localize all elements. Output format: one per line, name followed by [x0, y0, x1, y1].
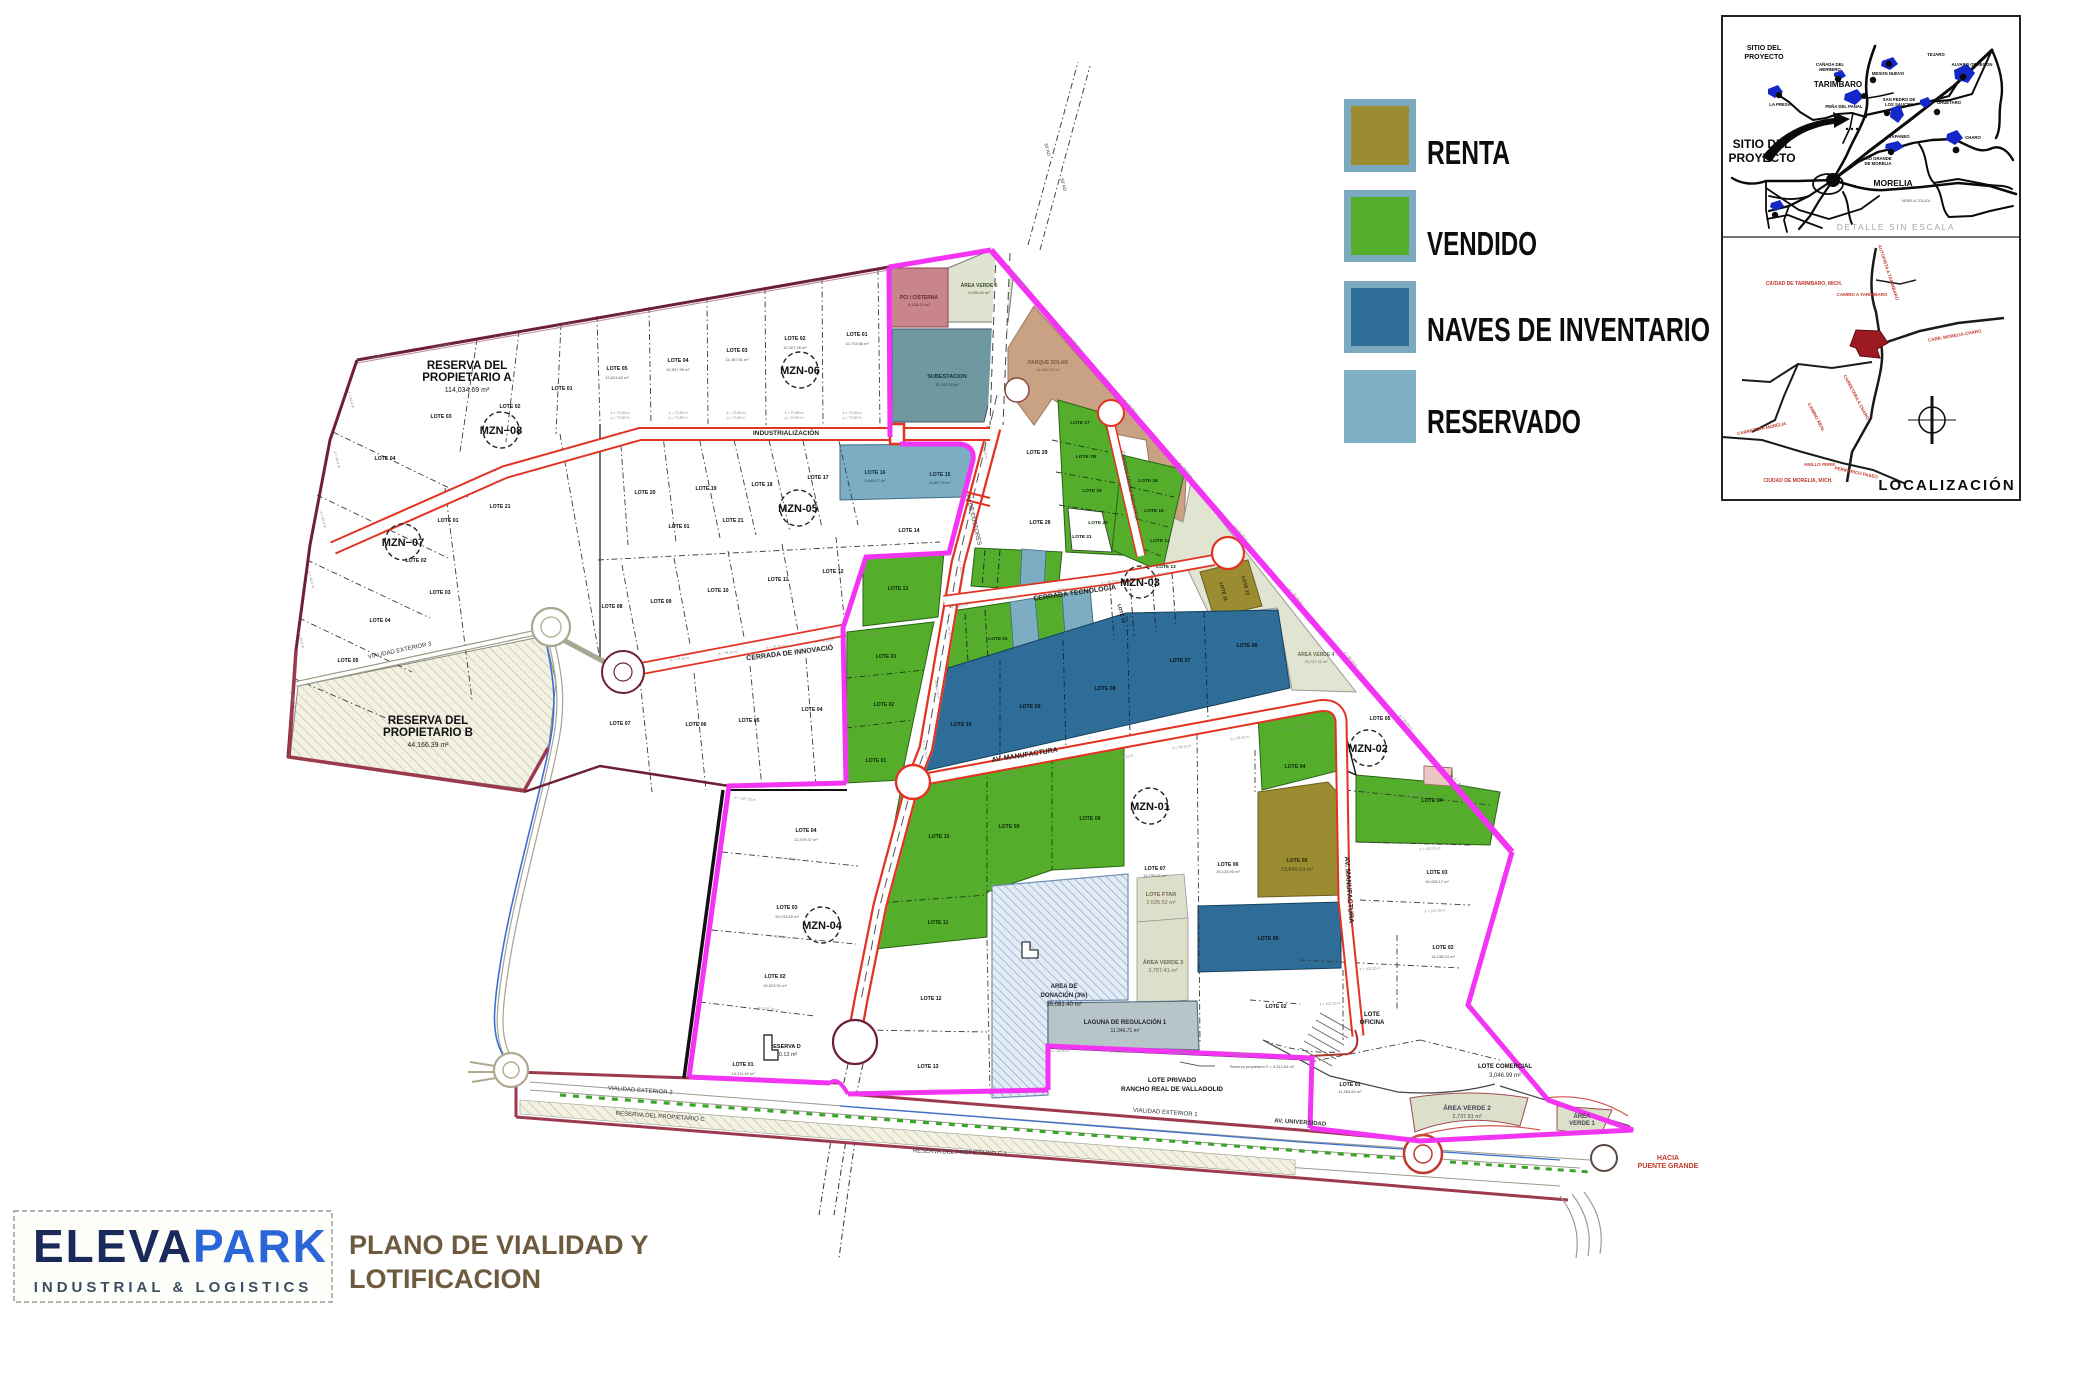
svg-text:LOTE 02: LOTE 02: [499, 404, 520, 410]
svg-text:LOTE 09: LOTE 09: [998, 824, 1019, 830]
svg-text:LOTE 06: LOTE 06: [1217, 862, 1238, 868]
svg-text:LOTE 08: LOTE 08: [1094, 686, 1115, 692]
svg-text:AV. UNIVERSIDAD: AV. UNIVERSIDAD: [1274, 1118, 1327, 1128]
svg-text:RESERVA DEL: RESERVA DEL: [427, 360, 507, 372]
svg-text:LOTE 15: LOTE 15: [1144, 508, 1164, 514]
svg-text:INDUSTRIALIZACIÓN: INDUSTRIALIZACIÓN: [753, 428, 819, 437]
svg-text:LOTE 10: LOTE 10: [928, 834, 949, 840]
svg-text:4 = 187.20 m: 4 = 187.20 m: [734, 796, 755, 802]
svg-text:LOTE 13: LOTE 13: [888, 586, 909, 592]
svg-text:MESON NUEVO: MESON NUEVO: [1872, 71, 1905, 76]
svg-text:d = 75.20 m: d = 75.20 m: [370, 353, 389, 360]
svg-text:MZN-06: MZN-06: [780, 365, 820, 377]
svg-text:LOTE 05: LOTE 05: [1257, 936, 1278, 942]
svg-text:d = 60.4 m: d = 60.4 m: [289, 691, 297, 709]
svg-text:LOTE 06: LOTE 06: [1236, 643, 1257, 649]
svg-text:LOTE: LOTE: [1364, 1012, 1380, 1018]
svg-text:11,457.81 m²: 11,457.81 m²: [725, 357, 749, 362]
svg-text:ANILLO PERIF.: ANILLO PERIF.: [1804, 462, 1836, 467]
svg-text:ÁREA VERDE 4: ÁREA VERDE 4: [1298, 651, 1335, 658]
svg-text:LOTE 16: LOTE 16: [1138, 478, 1158, 484]
svg-text:12,407.26 m²: 12,407.26 m²: [783, 345, 807, 350]
svg-text:d = 75.20 m: d = 75.20 m: [680, 300, 699, 307]
svg-text:LOTE 01: LOTE 01: [866, 758, 887, 764]
svg-text:MZN−08: MZN−08: [480, 425, 523, 437]
svg-text:LOTE 04: LOTE 04: [1284, 764, 1305, 770]
svg-text:d = 60.4 m: d = 60.4 m: [307, 571, 315, 589]
svg-text:d = 75.20 m: d = 75.20 m: [742, 289, 761, 296]
svg-text:ELEVAPARK: ELEVAPARK: [33, 1220, 328, 1272]
svg-text:6,126.20 m²: 6,126.20 m²: [908, 302, 930, 307]
svg-text:PLANO DE VIALIDAD Y: PLANO DE VIALIDAD Y: [349, 1230, 649, 1260]
svg-text:44,166.39 m²: 44,166.39 m²: [407, 742, 449, 749]
svg-text:4 = 73.85 m: 4 = 73.85 m: [668, 411, 687, 415]
svg-text:4 = 187.20 m: 4 = 187.20 m: [779, 856, 800, 862]
svg-text:VENDIDO: VENDIDO: [1427, 225, 1537, 262]
svg-text:d = 75.20 m: d = 75.20 m: [494, 332, 513, 339]
svg-text:HACIA: HACIA: [1657, 1155, 1679, 1162]
svg-text:LOTE 07: LOTE 07: [1169, 658, 1190, 664]
svg-text:d = 73.85 m: d = 73.85 m: [726, 416, 745, 421]
svg-text:LOTE 01: LOTE 01: [437, 518, 458, 524]
svg-text:VERDE 1: VERDE 1: [1569, 1121, 1595, 1127]
svg-text:SITIO DEL: SITIO DEL: [1747, 45, 1782, 52]
svg-text:LOTE 01: LOTE 01: [988, 636, 1008, 642]
svg-text:4 = 73.85 m: 4 = 73.85 m: [726, 411, 745, 415]
svg-text:LOTE 05: LOTE 05: [337, 658, 358, 664]
svg-text:RENTA: RENTA: [1427, 134, 1510, 171]
svg-text:LOTE 14: LOTE 14: [898, 528, 919, 534]
svg-text:LOTE 01: LOTE 01: [551, 386, 572, 392]
svg-text:MZN-01: MZN-01: [1130, 801, 1170, 813]
svg-text:LOTE 29: LOTE 29: [1026, 450, 1047, 456]
svg-text:LOTE 06: LOTE 06: [685, 722, 706, 728]
svg-text:LOTE 14: LOTE 14: [1150, 538, 1170, 544]
svg-text:LOTIFICACION: LOTIFICACION: [349, 1264, 541, 1294]
svg-text:LOTE 04: LOTE 04: [801, 707, 822, 713]
svg-text:LOTE 04: LOTE 04: [374, 456, 395, 462]
svg-text:LOTE 02: LOTE 02: [874, 702, 895, 708]
svg-text:LOCALIZACIÓN: LOCALIZACIÓN: [1878, 476, 2015, 494]
svg-text:ÁREA VERDE 3: ÁREA VERDE 3: [1143, 959, 1183, 966]
svg-text:13,849.63 m²: 13,849.63 m²: [1281, 867, 1314, 873]
svg-text:OFICINA: OFICINA: [1360, 1020, 1385, 1026]
svg-text:d = 75.20 m: d = 75.20 m: [804, 278, 823, 285]
svg-text:ATAPANEO: ATAPANEO: [1886, 134, 1910, 139]
svg-text:LOTE 11: LOTE 11: [928, 920, 949, 926]
svg-text:LOTE 05: LOTE 05: [1286, 858, 1307, 864]
svg-text:4 = 102.20 m: 4 = 102.20 m: [1359, 966, 1380, 971]
svg-text:LOTE 15: LOTE 15: [929, 472, 950, 478]
svg-text:LOTE 05: LOTE 05: [606, 366, 627, 372]
svg-text:LOTE 07: LOTE 07: [1144, 866, 1165, 872]
svg-text:LOTE 16: LOTE 16: [864, 470, 885, 476]
svg-text:LOTE 04: LOTE 04: [667, 358, 688, 364]
svg-text:LOTE 08: LOTE 08: [601, 604, 622, 610]
svg-text:d = 73.85 m: d = 73.85 m: [900, 416, 919, 421]
svg-text:4 = 187.20 m: 4 = 187.20 m: [769, 934, 790, 940]
svg-text:LOTE 21: LOTE 21: [489, 504, 510, 510]
svg-text:4 = 73.85 m: 4 = 73.85 m: [610, 411, 629, 415]
svg-text:LOTE 7B: LOTE 7B: [1076, 454, 1097, 460]
svg-text:ÁREA VERDE 5: ÁREA VERDE 5: [961, 282, 998, 289]
svg-text:LOTE 03: LOTE 03: [726, 348, 747, 354]
svg-text:LOTE 08: LOTE 08: [1079, 816, 1100, 822]
svg-text:Reserva propietario F = 3,312.: Reserva propietario F = 3,312.64 m²: [1230, 1064, 1295, 1069]
svg-text:CIUDAD DE TARIMBARO, MICH.: CIUDAD DE TARIMBARO, MICH.: [1766, 281, 1843, 287]
svg-text:6,467.70 m²: 6,467.70 m²: [929, 480, 951, 485]
svg-text:4 = 102.20 m: 4 = 102.20 m: [1319, 1001, 1340, 1006]
svg-text:PARQUE SOLAR: PARQUE SOLAR: [1028, 360, 1068, 366]
svg-text:NAVES DE INVENTARIO: NAVES DE INVENTARIO: [1427, 311, 1710, 348]
svg-text:AREA DE: AREA DE: [1051, 984, 1078, 990]
svg-text:4 = 73.85 m: 4 = 73.85 m: [784, 411, 803, 415]
svg-text:10,737.11 m²: 10,737.11 m²: [1304, 659, 1328, 664]
svg-text:DONACIÓN (3%): DONACIÓN (3%): [1040, 991, 1087, 999]
svg-text:DETALLE SIN ESCALA: DETALLE SIN ESCALA: [1837, 222, 1955, 232]
svg-text:10,557.99 m²: 10,557.99 m²: [666, 367, 690, 372]
svg-text:d = 75.20 m: d = 75.20 m: [556, 321, 575, 328]
svg-text:CAMINO A TARIMBARO: CAMINO A TARIMBARO: [1837, 292, 1888, 297]
svg-text:LOTE 03: LOTE 03: [776, 905, 797, 911]
svg-text:RANCHO REAL DE VALLADOLID: RANCHO REAL DE VALLADOLID: [1121, 1086, 1223, 1093]
svg-text:LOTE 01: LOTE 01: [668, 524, 689, 530]
svg-text:2,737.91 m²: 2,737.91 m²: [1452, 1114, 1482, 1120]
svg-text:MZN-04: MZN-04: [802, 920, 843, 932]
svg-text:ÁREA: ÁREA: [1573, 1113, 1591, 1120]
svg-text:d = 52.50 m: d = 52.50 m: [1170, 1051, 1189, 1055]
svg-text:12,743.66 m²: 12,743.66 m²: [845, 341, 869, 346]
svg-text:11,346.71 m²: 11,346.71 m²: [1110, 1028, 1139, 1034]
svg-text:35,081.40 m²: 35,081.40 m²: [1046, 1002, 1081, 1008]
svg-text:MORELIA: MORELIA: [1873, 178, 1912, 188]
svg-text:5,926.62 m²: 5,926.62 m²: [968, 290, 990, 295]
svg-text:LOTE 02: LOTE 02: [764, 974, 785, 980]
svg-text:14,738.01 m²: 14,738.01 m²: [1143, 873, 1167, 878]
svg-text:LOTE 04: LOTE 04: [1421, 798, 1442, 804]
svg-text:13,621.62 m²: 13,621.62 m²: [605, 375, 629, 380]
svg-text:LOTE 09: LOTE 09: [650, 599, 671, 605]
svg-text:MZN-05: MZN-05: [778, 503, 818, 515]
svg-text:PEÑA DEL PANAL: PEÑA DEL PANAL: [1825, 104, 1863, 109]
svg-text:LOTE 21: LOTE 21: [722, 518, 743, 524]
svg-text:LOTE 12: LOTE 12: [920, 996, 941, 1002]
svg-text:LOTE 03: LOTE 03: [430, 414, 451, 420]
svg-text:11,066.63 m²: 11,066.63 m²: [1036, 367, 1060, 372]
svg-text:ALVARO OBREGON: ALVARO OBREGON: [1952, 62, 1993, 67]
svg-text:CIUDAD DE MORELIA, MICH.: CIUDAD DE MORELIA, MICH.: [1763, 478, 1833, 484]
svg-text:RESERVA DEL: RESERVA DEL: [388, 715, 468, 727]
svg-text:4 = 102.20 m: 4 = 102.20 m: [1424, 908, 1445, 913]
svg-text:2,025.52 m²: 2,025.52 m²: [1146, 900, 1176, 906]
svg-text:PROPIETARIO A: PROPIETARIO A: [422, 372, 511, 384]
svg-text:22,479.47 m²: 22,479.47 m²: [794, 837, 818, 842]
svg-text:d = 52.50 m: d = 52.50 m: [1050, 1049, 1069, 1053]
svg-text:4 = 187.20 m: 4 = 187.20 m: [757, 1006, 778, 1012]
svg-text:LOTE 02: LOTE 02: [1432, 945, 1453, 951]
svg-text:LOTE 01: LOTE 01: [732, 1062, 753, 1068]
svg-text:20,743.80 m²: 20,743.80 m²: [775, 914, 799, 919]
svg-text:LOTE 02: LOTE 02: [784, 336, 805, 342]
svg-text:LOTE 20: LOTE 20: [634, 490, 655, 496]
svg-text:4 = 102.20 m: 4 = 102.20 m: [1419, 846, 1440, 851]
svg-text:30' AD: 30' AD: [1059, 178, 1067, 193]
svg-text:RESERVADO: RESERVADO: [1427, 403, 1581, 440]
svg-text:d = 60.4 m: d = 60.4 m: [319, 511, 327, 529]
svg-text:d = 73.85 m: d = 73.85 m: [842, 416, 861, 421]
svg-text:LOTE 04: LOTE 04: [369, 618, 390, 624]
svg-text:LOTE 04: LOTE 04: [795, 828, 816, 834]
svg-text:PROPIETARIO B: PROPIETARIO B: [383, 727, 473, 739]
svg-text:LOTE 01: LOTE 01: [1339, 1082, 1360, 1088]
svg-text:114,034.69 m²: 114,034.69 m²: [445, 387, 490, 394]
svg-text:d = 75.20 m: d = 75.20 m: [618, 310, 637, 317]
svg-text:PCI / CISTERNA: PCI / CISTERNA: [900, 295, 938, 301]
svg-text:14,238.24 m²: 14,238.24 m²: [1431, 954, 1455, 959]
svg-text:4 = 73.85 m: 4 = 73.85 m: [842, 411, 861, 415]
svg-text:LOTE 19: LOTE 19: [695, 486, 716, 492]
svg-text:ÁREA VERDE 2: ÁREA VERDE 2: [1443, 1103, 1491, 1112]
svg-text:LOTE 21: LOTE 21: [1072, 534, 1092, 540]
svg-text:LOTE 03: LOTE 03: [429, 590, 450, 596]
svg-text:MZN−07: MZN−07: [382, 537, 425, 549]
svg-text:TARIMBARO: TARIMBARO: [1814, 80, 1862, 89]
svg-text:LOTE 10: LOTE 10: [707, 588, 728, 594]
svg-text:d = 52.50 m: d = 52.50 m: [1230, 1052, 1249, 1056]
svg-text:LOTE 03: LOTE 03: [1426, 870, 1447, 876]
svg-text:LOTE PRIVADO: LOTE PRIVADO: [1148, 1077, 1196, 1084]
svg-text:LOTE 05: LOTE 05: [738, 718, 759, 724]
svg-text:PUENTE GRANDE: PUENTE GRANDE: [1638, 1163, 1699, 1170]
svg-text:d = 73.85 m: d = 73.85 m: [958, 416, 977, 421]
svg-text:MORELIA-TOLUCA: MORELIA-TOLUCA: [1902, 199, 1931, 203]
svg-text:3,757.41 m²: 3,757.41 m²: [1148, 968, 1178, 974]
svg-text:URUETARO: URUETARO: [1937, 100, 1962, 105]
svg-text:30' AD: 30' AD: [1043, 143, 1051, 158]
svg-text:LAGUNA DE REGULACIÓN 1: LAGUNA DE REGULACIÓN 1: [1084, 1018, 1167, 1026]
svg-text:15,157.52 m²: 15,157.52 m²: [935, 382, 959, 387]
svg-text:LOTE FTAR: LOTE FTAR: [1146, 892, 1176, 898]
svg-text:LOTE 02: LOTE 02: [1265, 1004, 1286, 1010]
svg-text:LOTE 09: LOTE 09: [1019, 704, 1040, 710]
svg-text:PROYECTO: PROYECTO: [1728, 151, 1795, 165]
svg-text:LOTE 19: LOTE 19: [1082, 488, 1102, 494]
svg-text:d = 73.85 m: d = 73.85 m: [784, 416, 803, 421]
svg-text:d = 58.12 m: d = 58.12 m: [1172, 744, 1191, 751]
svg-text:LOTE 10: LOTE 10: [950, 722, 971, 728]
svg-text:LOTE 28: LOTE 28: [1029, 520, 1050, 526]
svg-text:SUBESTACION: SUBESTACION: [927, 374, 967, 380]
svg-text:INDUSTRIAL & LOGISTICS: INDUSTRIAL & LOGISTICS: [34, 1279, 313, 1296]
svg-text:LOTE 12: LOTE 12: [822, 569, 843, 575]
svg-text:d = 52.50 m: d = 52.50 m: [1110, 1050, 1129, 1054]
svg-text:d = 58.12 m: d = 58.12 m: [1230, 735, 1249, 742]
svg-text:d = 73.85 m: d = 73.85 m: [610, 416, 629, 421]
svg-text:16,023.91 m²: 16,023.91 m²: [763, 983, 787, 988]
svg-text:LOTE 17: LOTE 17: [1070, 420, 1090, 426]
svg-text:d = 60.4 m: d = 60.4 m: [347, 391, 355, 409]
svg-text:5,849.27 m²: 5,849.27 m²: [864, 478, 886, 483]
svg-text:LOS SAUCES: LOS SAUCES: [1885, 102, 1913, 107]
svg-text:DE MORELIA: DE MORELIA: [1865, 161, 1892, 166]
svg-text:19,311.40 m²: 19,311.40 m²: [731, 1071, 755, 1076]
svg-text:15,125.90 m²: 15,125.90 m²: [1216, 869, 1240, 874]
svg-text:LOTE 03: LOTE 03: [876, 654, 897, 660]
svg-text:d = 60.4 m: d = 60.4 m: [333, 451, 341, 469]
svg-text:PROYECTO: PROYECTO: [1744, 54, 1784, 61]
svg-text:LOTE 13: LOTE 13: [917, 1064, 938, 1070]
svg-text:TEJARO: TEJARO: [1927, 52, 1945, 57]
svg-text:11,284.60 m²: 11,284.60 m²: [1338, 1089, 1362, 1094]
svg-text:LOTE 13: LOTE 13: [1156, 564, 1176, 570]
svg-text:LOTE 18: LOTE 18: [751, 482, 772, 488]
svg-text:d = 73.85 m: d = 73.85 m: [668, 416, 687, 421]
svg-text:16,428.17 m²: 16,428.17 m²: [1425, 879, 1449, 884]
svg-text:LOTE 02: LOTE 02: [405, 558, 426, 564]
svg-text:SITIO DEL: SITIO DEL: [1733, 137, 1792, 151]
svg-text:LOTE COMERCIAL: LOTE COMERCIAL: [1478, 1064, 1532, 1070]
svg-text:MZN-02: MZN-02: [1348, 743, 1388, 755]
svg-text:LOTE 01: LOTE 01: [846, 332, 867, 338]
svg-text:LOTE 05: LOTE 05: [1369, 716, 1390, 722]
svg-text:HERRERO: HERRERO: [1819, 67, 1841, 72]
svg-text:LOTE 07: LOTE 07: [609, 721, 630, 727]
svg-text:LOTE 20: LOTE 20: [1088, 520, 1108, 526]
svg-text:3,046.99 m²: 3,046.99 m²: [1489, 1073, 1521, 1079]
svg-text:MZN-03: MZN-03: [1120, 577, 1160, 589]
svg-text:RESERVA D: RESERVA D: [769, 1044, 800, 1050]
svg-text:LOTE 11: LOTE 11: [768, 577, 789, 583]
svg-text:LA PRESA: LA PRESA: [1769, 102, 1791, 107]
svg-text:LOTE 17: LOTE 17: [807, 475, 828, 481]
svg-text:CHARO: CHARO: [1965, 135, 1981, 140]
